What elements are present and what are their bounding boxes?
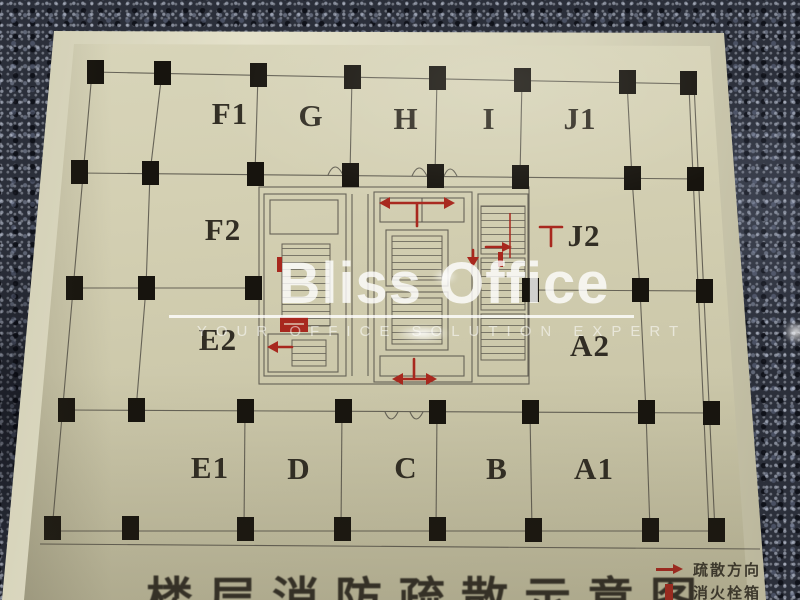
legend-label: 消火栓箱	[693, 582, 761, 600]
evacuation-arrow	[388, 203, 446, 226]
fire-hydrant-icon	[665, 584, 673, 600]
fire-hydrant-marker	[277, 257, 282, 272]
zone-label: D	[287, 451, 310, 487]
zone-label: J1	[564, 101, 597, 137]
legend-row-evacuation-direction: 疏散方向	[656, 560, 761, 578]
zone-label: E2	[199, 322, 237, 358]
column-markers	[44, 60, 725, 542]
grid-lines	[66, 72, 714, 530]
fire-hydrant-marker	[498, 252, 503, 267]
evacuation-arrow	[540, 227, 562, 246]
sign-title: 楼层消防疏散示意图	[146, 561, 713, 600]
stairwell-block	[282, 244, 330, 326]
core-corridor	[352, 194, 368, 376]
zone-label: F1	[212, 96, 248, 132]
zone-label: E1	[191, 450, 229, 486]
legend-label: 疏散方向	[693, 559, 761, 580]
legend: 疏散方向 消火栓箱	[656, 560, 761, 600]
zone-label: B	[486, 451, 508, 487]
zone-label: C	[394, 450, 417, 486]
legend-row-fire-hydrant: 消火栓箱	[656, 583, 761, 600]
zone-label: J2	[568, 218, 601, 254]
zone-label: I	[482, 101, 495, 137]
building-core	[259, 187, 529, 384]
zone-label: A2	[570, 328, 610, 364]
zone-label: F2	[205, 212, 241, 248]
floor-plan	[0, 0, 800, 600]
zone-label: A1	[574, 451, 614, 487]
zone-label: H	[393, 101, 418, 137]
evacuation-direction-icon	[656, 564, 684, 574]
photo-of-evacuation-sign: F1GHIJ1F2J2E2A2E1DCBA1 楼层消防疏散示意图 疏散方向 消火…	[0, 0, 800, 600]
zone-label: G	[298, 98, 323, 134]
